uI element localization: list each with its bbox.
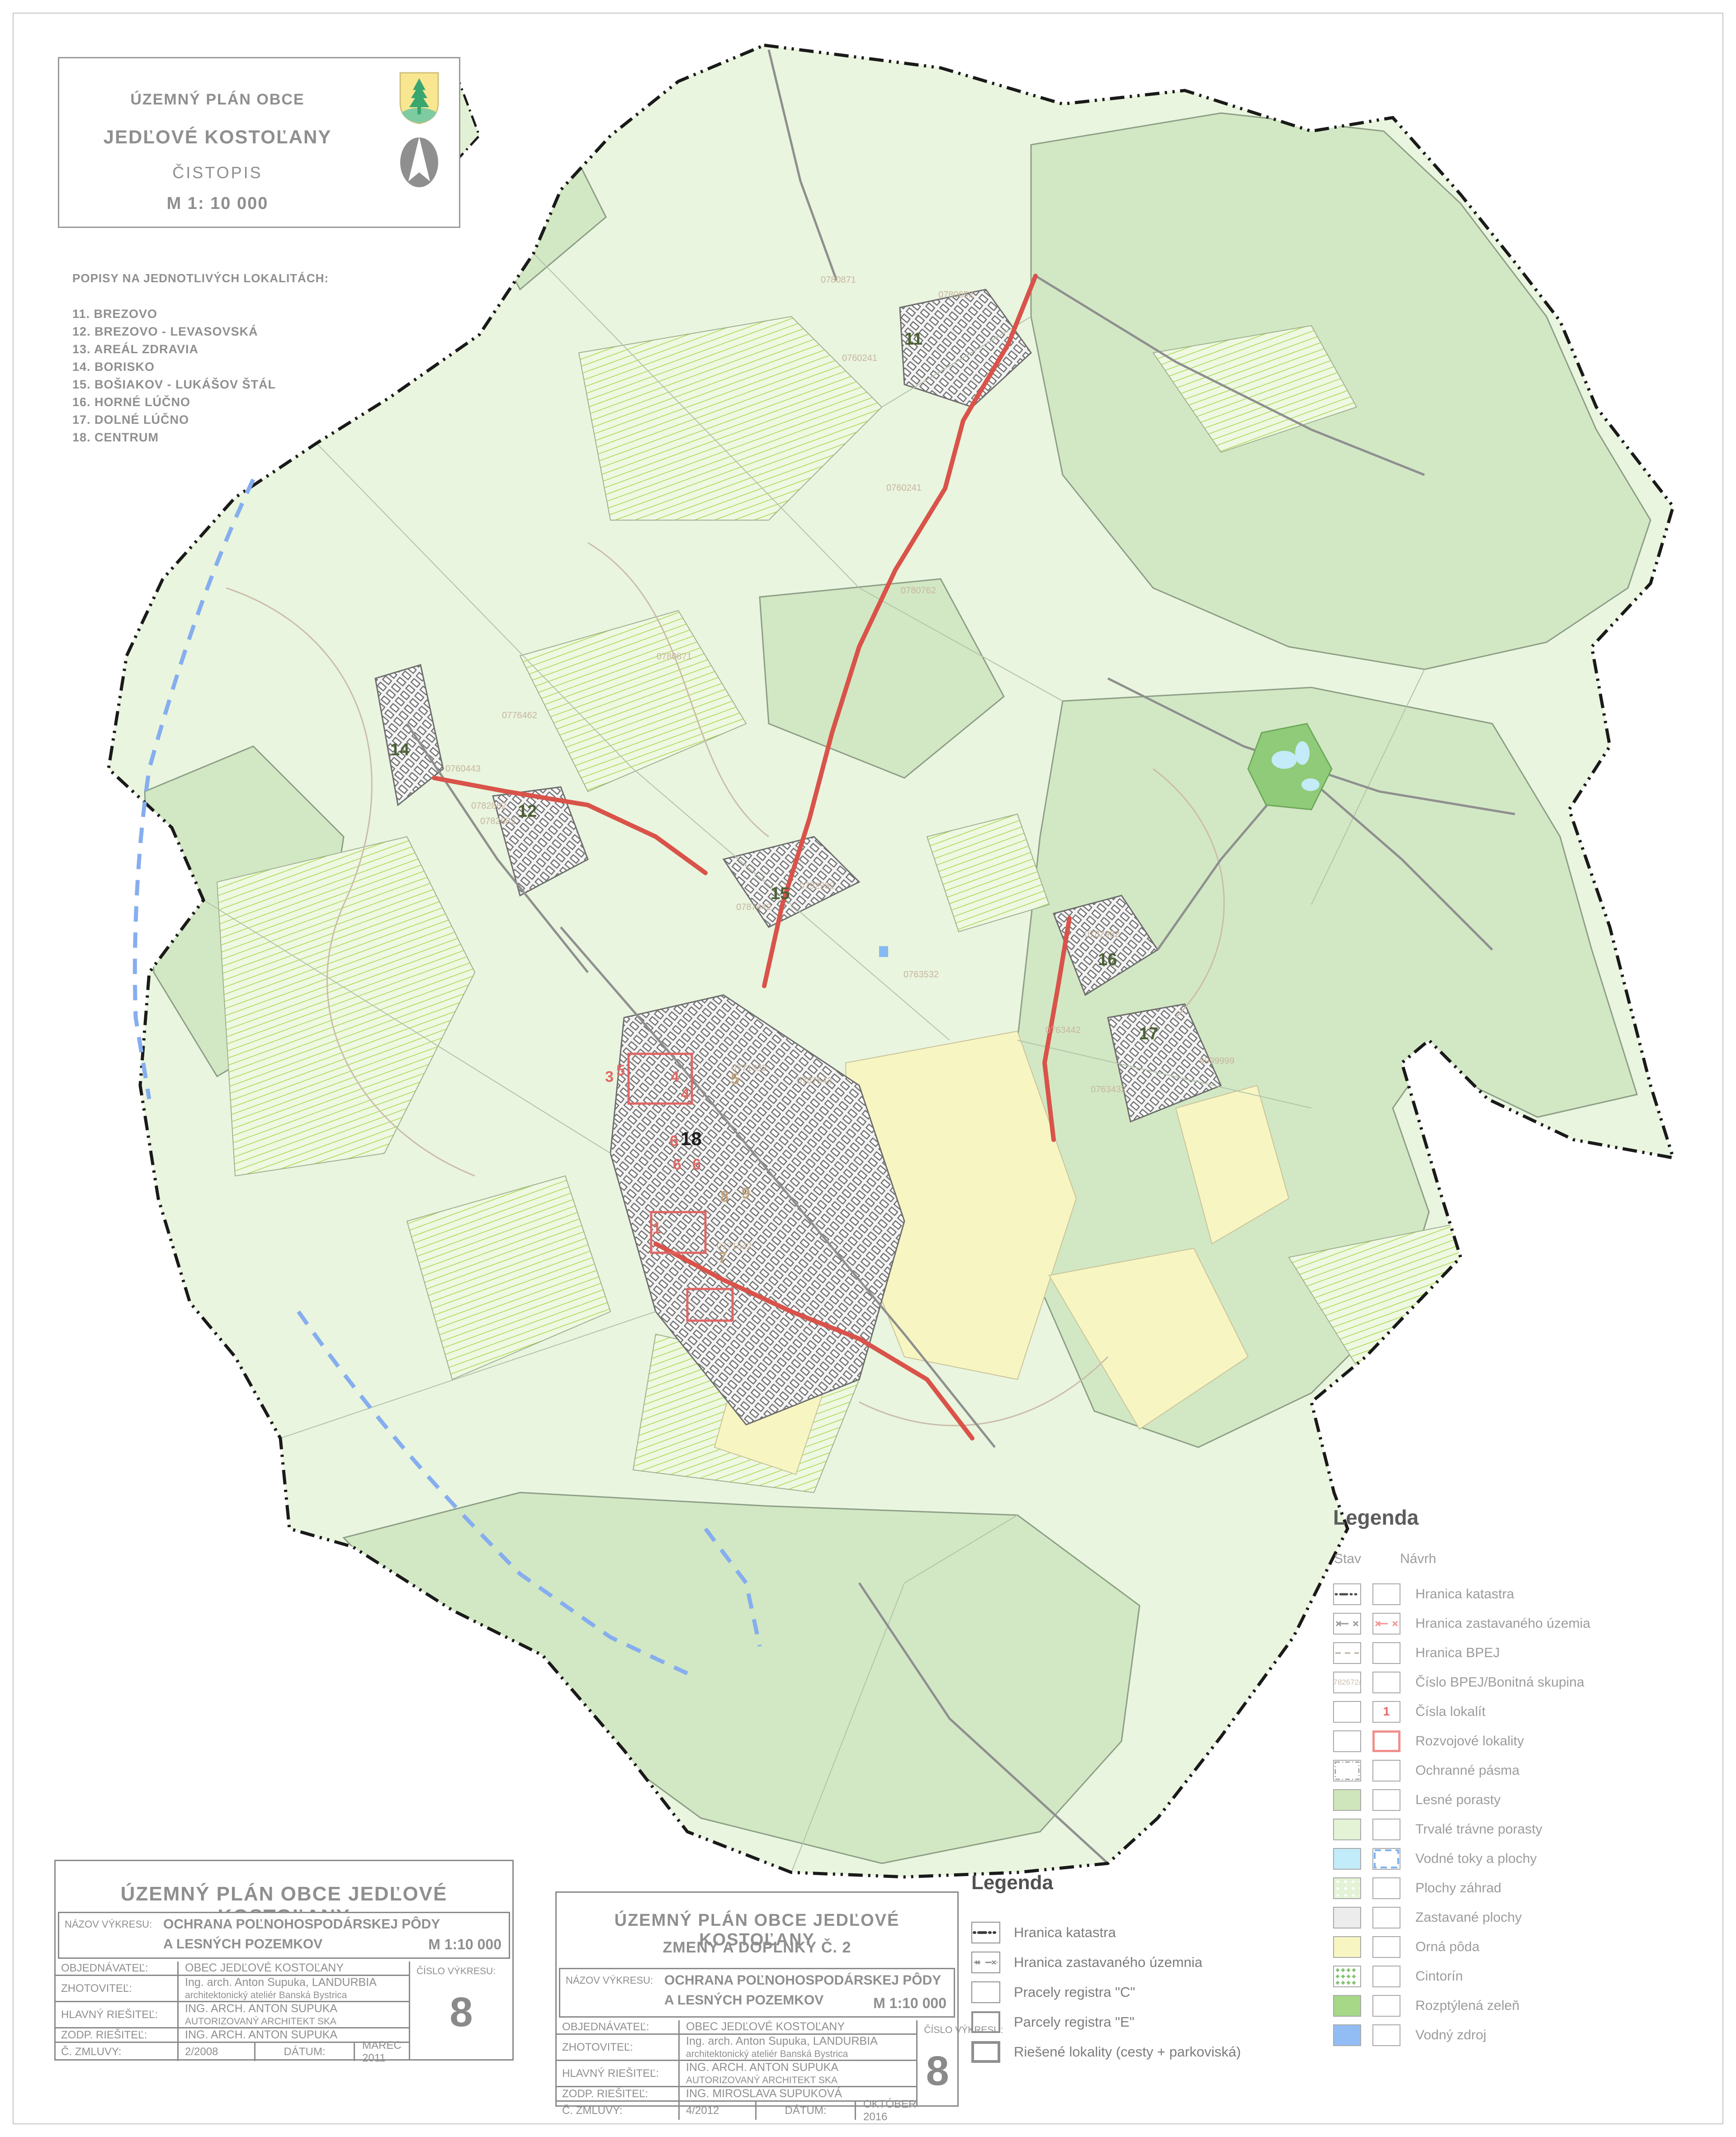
drawing-scale: M 1:10 000 (428, 1936, 501, 1953)
legend-row-hranica-zastavaneho: Hranica zastavaného územia (1333, 1609, 1722, 1638)
legend-row-cislo-bpej: 0782672/9 Číslo BPEJ/Bonitná skupina (1333, 1668, 1722, 1697)
block-subtitle: ZMENY A DOPLNKY Č. 2 (557, 1939, 957, 1957)
plan-sheet: { "title_block": { "line1": "ÚZEMNÝ PLÁN… (0, 0, 1736, 2137)
legend-row-hranica-katastra: Hranica katastra (1333, 1579, 1722, 1609)
bpej-label: 0760241 (842, 353, 877, 363)
legend-row-zastavane-plochy: Zastavané plochy (1333, 1903, 1722, 1932)
bpej-label: 0760241 (886, 483, 922, 493)
legend-row-cisla-lokalit: 1 Čísla lokalít (1333, 1697, 1722, 1726)
bpej-label: 0780871 (821, 275, 856, 285)
drawing-number-cell: ČÍSLO VÝKRESU: 8 (918, 2020, 957, 2105)
table-row: OBJEDNÁVATEĽ: OBEC JEDĽOVÉ KOSTOĽANY (557, 2020, 916, 2035)
locality-number: 11 (904, 330, 922, 349)
table-row: ZODP. RIEŠITEĽ: ING. MIROSLAVA SUPUKOVÁ (557, 2087, 916, 2102)
bpej-label: 0760443 (445, 764, 481, 774)
bpej-label: 0771332 (732, 1063, 767, 1073)
red-number: 5 (616, 1062, 625, 1079)
table-row: ZHOTOVITEĽ: Ing. arch. Anton Supuka, LAN… (56, 1976, 409, 2002)
bpej-label: 0787442 (736, 902, 771, 912)
plan-title-line1: ÚZEMNÝ PLÁN OBCE (59, 91, 376, 109)
title-block-bottom-middle: ÚZEMNÝ PLÁN OBCE JEDĽOVÉ KOSTOĽANY ZMENY… (555, 1891, 959, 2107)
scattered-green-swatch (1333, 1995, 1361, 2017)
bpej-label: 0771542 (717, 1241, 752, 1251)
legend-row-ochranne-pasma: Ochranné pásma (1333, 1756, 1722, 1785)
legend-row-vodny-zdroj: Vodný zdroj (1333, 2020, 1722, 2050)
locality-item: 18. CENTRUM (72, 429, 389, 446)
red-number: 6 (692, 1156, 701, 1173)
info-table: OBJEDNÁVATEĽ: OBEC JEDĽOVÉ KOSTOĽANY ZHO… (557, 2020, 957, 2105)
locality-item: 11. BREZOVO (72, 305, 389, 323)
empty-swatch (1372, 1672, 1400, 1693)
forest-swatch (1333, 1789, 1361, 1811)
water-swatch (1333, 1848, 1361, 1870)
bpej-label: 0782882 (471, 801, 506, 811)
bpej-label: 0763442 (1045, 1025, 1081, 1035)
drawing-name-band: NÁZOV VÝKRESU: OCHRANA POĽNOHOSPODÁRSKEJ… (58, 1912, 510, 1959)
tan-number: 7 (718, 1249, 727, 1266)
red-number: 6 (673, 1156, 681, 1173)
plan-title-line3: ČISTOPIS (59, 163, 376, 182)
solved-localities-swatch (971, 2041, 1000, 2063)
locality-item: 14. BORISKO (72, 358, 389, 376)
title-block-top: ÚZEMNÝ PLÁN OBCE JEDĽOVÉ KOSTOĽANY ČISTO… (58, 57, 460, 228)
built-boundary-swatch-red (1372, 1613, 1400, 1635)
red-number: 6 (670, 1132, 678, 1150)
bpej-label: 9999999 (1199, 1056, 1235, 1066)
legend-row-lesne-porasty: Lesné porasty (1333, 1785, 1722, 1815)
cadastre-line-swatch (1333, 1583, 1361, 1605)
water-proposed-swatch (1372, 1848, 1400, 1870)
locality-item: 13. AREÁL ZDRAVIA (72, 341, 389, 358)
table-row-contract: Č. ZMLUVY: 4/2012 DÁTUM: OKTÓBER 2016 (557, 2102, 916, 2120)
cemetery-swatch (1333, 1966, 1361, 1987)
bpej-line-swatch (1333, 1642, 1361, 1664)
empty-swatch (1333, 1730, 1361, 1752)
locality-number: 14 (390, 740, 409, 759)
legend-col-stav: Stav (1334, 1551, 1374, 1567)
empty-swatch (1333, 1701, 1361, 1723)
red-number: 4 (681, 1085, 690, 1103)
legend-row-register-c: Pracely registra "C" (971, 1977, 1333, 2007)
table-row: ZHOTOVITEĽ: Ing. arch. Anton Supuka, LAN… (557, 2035, 916, 2061)
table-row: HLAVNÝ RIEŠITEĽ: ING. ARCH. ANTON SUPUKA… (557, 2061, 916, 2087)
empty-swatch (1372, 1907, 1400, 1929)
locality-item: 17. DOLNÉ LÚČNO (72, 411, 389, 429)
locality-list: POPISY NA JEDNOTLIVÝCH LOKALITÁCH: 11. B… (72, 271, 389, 446)
empty-swatch (1372, 1583, 1400, 1605)
locality-item: 12. BREZOVO - LEVASOVSKÁ (72, 323, 389, 341)
empty-swatch (1372, 1877, 1400, 1899)
tan-number: 8 (720, 1188, 729, 1205)
legend-row-plochy-zahrad: Plochy záhrad (1333, 1873, 1722, 1903)
legend-row-travne-porasty: Trvalé trávne porasty (1333, 1815, 1722, 1844)
register-c-swatch (971, 1981, 1000, 2003)
legend-row-cintorin: Cintorín (1333, 1962, 1722, 1991)
locality-item: 15. BOŠIAKOV - LUKÁŠOV ŠTÁL (72, 376, 389, 393)
empty-swatch (1372, 1789, 1400, 1811)
bpej-label: 0763432 (1091, 1085, 1126, 1095)
bpej-label: 0782982 (1084, 929, 1120, 939)
legend-row-hranica-bpej: Hranica BPEJ (1333, 1638, 1722, 1668)
legend-row-rozptylena-zelen: Rozptýlená zeleň (1333, 1991, 1722, 2020)
red-number: 3 (605, 1068, 614, 1085)
protection-zone-swatch (1333, 1760, 1361, 1782)
legend-row-katastra: Hranica katastra (971, 1918, 1333, 1947)
empty-swatch (1372, 1642, 1400, 1664)
legend-row-vodne-toky: Vodné toky a plochy (1333, 1844, 1722, 1873)
legend-row-register-e: Parcely registra "E" (971, 2007, 1333, 2037)
empty-swatch (1372, 1760, 1400, 1782)
built-boundary-swatch (971, 1952, 1000, 1973)
legend-columns: Stav Návrh (1333, 1551, 1722, 1567)
info-table: OBJEDNÁVATEĽ: OBEC JEDĽOVÉ KOSTOĽANY ZHO… (56, 1962, 512, 2059)
locality-number: 16 (1098, 950, 1117, 969)
empty-swatch (1372, 1966, 1400, 1987)
bpej-label: 0787542 (797, 1076, 832, 1086)
red-number: 4 (671, 1068, 679, 1085)
legend-bottom: Legenda Hranica katastra Hranica zastava… (971, 1872, 1333, 2067)
locality-list-heading: POPISY NA JEDNOTLIVÝCH LOKALITÁCH: (72, 271, 389, 285)
bpej-label: 0780762 (901, 586, 936, 596)
locality-item: 16. HORNÉ LÚČNO (72, 393, 389, 411)
locality-number-centrum: 18 (681, 1128, 702, 1149)
development-locality-swatch (1372, 1730, 1400, 1752)
bpej-code-swatch: 0782672/9 (1333, 1672, 1361, 1693)
legend-row-zastavane-uzemie: Hranica zastavaného územnia (971, 1947, 1333, 1977)
built-boundary-swatch-gray (1333, 1613, 1361, 1635)
plan-title-line2: JEDĽOVÉ KOSTOĽANY (59, 126, 376, 148)
table-row: ZODP. RIEŠITEĽ: ING. ARCH. ANTON SUPUKA (56, 2028, 409, 2043)
garden-swatch (1333, 1877, 1361, 1899)
legend-bottom-title: Legenda (971, 1872, 1333, 1894)
empty-swatch (1372, 1936, 1400, 1958)
coat-of-arms-icon (397, 71, 441, 128)
legend-right: Legenda Stav Návrh Hranica katastra Hran… (1333, 1505, 1722, 2050)
bpej-label: 0763532 (903, 970, 939, 980)
empty-swatch (1372, 1819, 1400, 1840)
water-source-swatch (1333, 2024, 1361, 2046)
red-number: 1 (653, 1220, 661, 1237)
title-block-bottom-left: ÚZEMNÝ PLÁN OBCE JEDĽOVÉ KOSTOĽANY NÁZOV… (54, 1860, 514, 2061)
arable-swatch (1333, 1936, 1361, 1958)
locality-number: 15 (771, 884, 790, 903)
drawing-name-band: NÁZOV VÝKRESU: OCHRANA POĽNOHOSPODÁRSKEJ… (559, 1968, 955, 2018)
legend-right-title: Legenda (1333, 1505, 1722, 1530)
legend-row-riesene-lokality: Riešené lokality (cesty + parkoviská) (971, 2037, 1333, 2067)
built-up-swatch (1333, 1907, 1361, 1929)
plan-scale: M 1: 10 000 (59, 194, 376, 213)
bpej-label: 0776462 (502, 711, 537, 720)
legend-row-rozvojove-lokality: Rozvojové lokality (1333, 1726, 1722, 1756)
drawing-number-cell: ČÍSLO VÝKRESU: 8 (410, 1962, 512, 2059)
empty-swatch (1372, 2024, 1400, 2046)
legend-col-navrh: Návrh (1400, 1551, 1436, 1567)
tan-number: 9 (742, 1185, 750, 1202)
legend-row-orna-poda: Orná pôda (1333, 1932, 1722, 1962)
locality-number: 12 (518, 802, 537, 821)
locality-number: 17 (1139, 1024, 1158, 1043)
bpej-label: 0792982 (799, 881, 835, 891)
bpej-label: 0782682 (480, 816, 516, 826)
drawing-number: 8 (410, 1989, 512, 2036)
grassland-swatch (1333, 1819, 1361, 1840)
drawing-number: 8 (918, 2047, 957, 2095)
north-arrow-icon (398, 134, 440, 191)
table-row: OBJEDNÁVATEĽ: OBEC JEDĽOVÉ KOSTOĽANY (56, 1962, 409, 1976)
cadastre-line-swatch (971, 1922, 1000, 1943)
table-row: HLAVNÝ RIEŠITEĽ: ING. ARCH. ANTON SUPUKA… (56, 2002, 409, 2028)
bpej-label: 0780871 (657, 652, 692, 662)
table-row-contract: Č. ZMLUVY: 2/2008 DÁTUM: MAREC 2011 (56, 2043, 409, 2061)
locality-number-swatch: 1 (1372, 1701, 1400, 1723)
empty-swatch (1372, 1995, 1400, 2017)
bpej-label: 0780652 (938, 290, 974, 300)
drawing-scale: M 1:10 000 (873, 1995, 946, 2012)
